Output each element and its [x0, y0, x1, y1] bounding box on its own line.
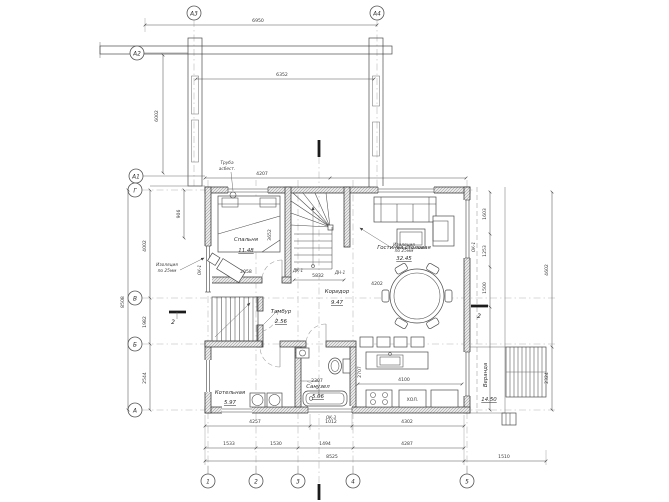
dim-dining: 4202 — [371, 281, 383, 287]
dim-b3a: 8525 — [326, 454, 338, 460]
window-bottom-ok3 — [308, 406, 352, 414]
window-living-right — [463, 200, 471, 258]
door-bedroom — [262, 260, 282, 280]
dining-table — [382, 263, 452, 330]
room-tambour-name: Тамбур — [271, 309, 292, 315]
floor-plan-page: 6950 6352 6002 — [0, 0, 669, 502]
entry-steps — [212, 297, 258, 341]
window-bedroom-top — [228, 186, 268, 194]
window-bedroom-left — [204, 246, 212, 292]
axis-2: 2 — [249, 466, 263, 488]
dim-left-vb: 1982 — [142, 316, 148, 328]
note-insul-left-2: по 25мм — [158, 268, 178, 274]
axis-a4: А4 — [370, 6, 384, 20]
door-boiler — [260, 347, 280, 367]
dim-b2b: 1530 — [270, 441, 282, 447]
kitchen-cabinet — [431, 390, 458, 407]
kitchen: ХОЛ. — [360, 337, 458, 407]
axis-a1: А1 — [129, 169, 143, 183]
door-bath — [306, 324, 326, 344]
room-corridor-area: 9.47 — [331, 300, 344, 306]
staircase — [291, 193, 333, 269]
mark-ok3: ОК-3 — [326, 415, 337, 420]
dim-r1a: 1603 — [482, 208, 488, 220]
floor-plan-canvas: 6950 6352 6002 — [0, 0, 669, 502]
svg-text:5: 5 — [465, 480, 469, 486]
window-boiler-bottom — [222, 406, 252, 414]
dim-left-total: 8508 — [120, 296, 126, 308]
axis-4: 4 — [346, 466, 360, 488]
room-bedroom-area: 11.48 — [238, 248, 254, 254]
window-boiler-left — [204, 360, 212, 392]
room-wc-area: 5.06 — [312, 394, 325, 400]
dim-a2a1: 6002 — [154, 110, 160, 122]
room-veranda-name: Веранда — [483, 363, 489, 387]
window-kitchen-right — [463, 352, 471, 396]
mark-dk1: ДК-1 — [292, 268, 303, 273]
dim-above: 4207 — [256, 171, 268, 177]
axis-g: Г — [128, 183, 142, 197]
window-living-top — [378, 186, 434, 194]
fridge: ХОЛ. — [399, 390, 426, 407]
note-chimney-1: Труба — [220, 160, 234, 166]
svg-text:А4: А4 — [372, 12, 381, 18]
svg-text:В: В — [133, 297, 137, 303]
note-chimney-2: асбест. — [219, 166, 236, 172]
dim-r2b: 2324 — [544, 372, 550, 384]
room-boiler-name: Котельная — [215, 390, 246, 396]
mark-ok1-left: ОК-1 — [197, 265, 202, 275]
sofa — [374, 197, 436, 222]
room-boiler-area: 5.97 — [224, 400, 237, 406]
note-insul-left-1: Изоляция — [156, 262, 178, 268]
svg-text:А: А — [132, 409, 137, 415]
dim-top1: 6950 — [252, 18, 264, 24]
dim-r2a: 4602 — [544, 264, 550, 276]
svg-text:Б: Б — [133, 343, 137, 349]
terrace-structure — [100, 38, 392, 188]
dim-left-gv: 4002 — [142, 240, 148, 252]
stove — [366, 390, 392, 407]
fridge-label: ХОЛ. — [407, 397, 419, 403]
bed — [218, 196, 280, 252]
axis-3: 3 — [291, 466, 305, 488]
axis-a: А — [128, 403, 142, 417]
room-tambour-area: 2.56 — [275, 319, 288, 325]
room-bedroom-name: Спальня — [234, 237, 259, 243]
mark-dn1: ДН-1 — [334, 270, 345, 275]
axis-b: Б — [128, 337, 142, 351]
axis-5: 5 — [460, 466, 474, 488]
dim-b3b: 1510 — [498, 454, 510, 460]
room-living-area: 32.45 — [396, 256, 412, 262]
axis-v: В — [128, 291, 142, 305]
axis-1: 1 — [201, 466, 215, 488]
axis-a3: А3 — [187, 6, 201, 20]
svg-text:А2: А2 — [132, 52, 141, 58]
svg-text:А3: А3 — [189, 12, 198, 18]
dimension-chains: 8508 4002 1982 2544 906 4207 4257 1012 4… — [120, 171, 552, 465]
svg-text:А1: А1 — [131, 175, 140, 181]
svg-text:3: 3 — [296, 480, 300, 486]
dim-b2c: 1494 — [319, 441, 331, 447]
bathtub — [303, 391, 347, 406]
dim-bedroom-b: 2058 — [240, 269, 252, 275]
svg-text:2: 2 — [254, 480, 258, 486]
room-veranda-area: 14.50 — [481, 397, 497, 403]
terrace-dimensions: 6950 6352 6002 — [145, 18, 377, 173]
armchair — [433, 216, 454, 246]
toilet — [329, 358, 351, 374]
note-insul-right-1: Изоляция — [393, 242, 415, 248]
room-wc-name: Санузел — [306, 384, 330, 390]
svg-text:4: 4 — [351, 480, 355, 486]
dim-left-ba: 2544 — [142, 372, 148, 384]
mark-ok1-right: ОК-1 — [471, 242, 476, 252]
dim-r1b: 1253 — [482, 245, 488, 257]
dim-r1c: 1500 — [482, 282, 488, 294]
section2-right-label: 2 — [477, 313, 481, 320]
dim-kitchen: 4100 — [398, 377, 410, 383]
dim-b1a: 4257 — [249, 419, 261, 425]
dim-corridor: 5832 — [312, 273, 324, 279]
dim-b1c: 4302 — [401, 419, 413, 425]
dim-left-906: 906 — [176, 210, 182, 219]
axis-a2: А2 — [130, 46, 188, 60]
svg-text:1: 1 — [206, 480, 210, 486]
dim-kitchen-v: 2707 — [357, 366, 363, 378]
room-corridor-name: Коридор — [325, 289, 350, 295]
dim-b2d: 4287 — [401, 441, 413, 447]
note-insul-right-2: по 25мм — [395, 248, 415, 254]
dim-bedroom-v: 3652 — [267, 229, 273, 241]
boiler-equipment — [250, 393, 282, 407]
dim-b2a: 1533 — [223, 441, 235, 447]
dim-top2: 6352 — [276, 72, 288, 78]
section2-left-label: 2 — [171, 319, 175, 326]
washbasin — [296, 348, 309, 358]
